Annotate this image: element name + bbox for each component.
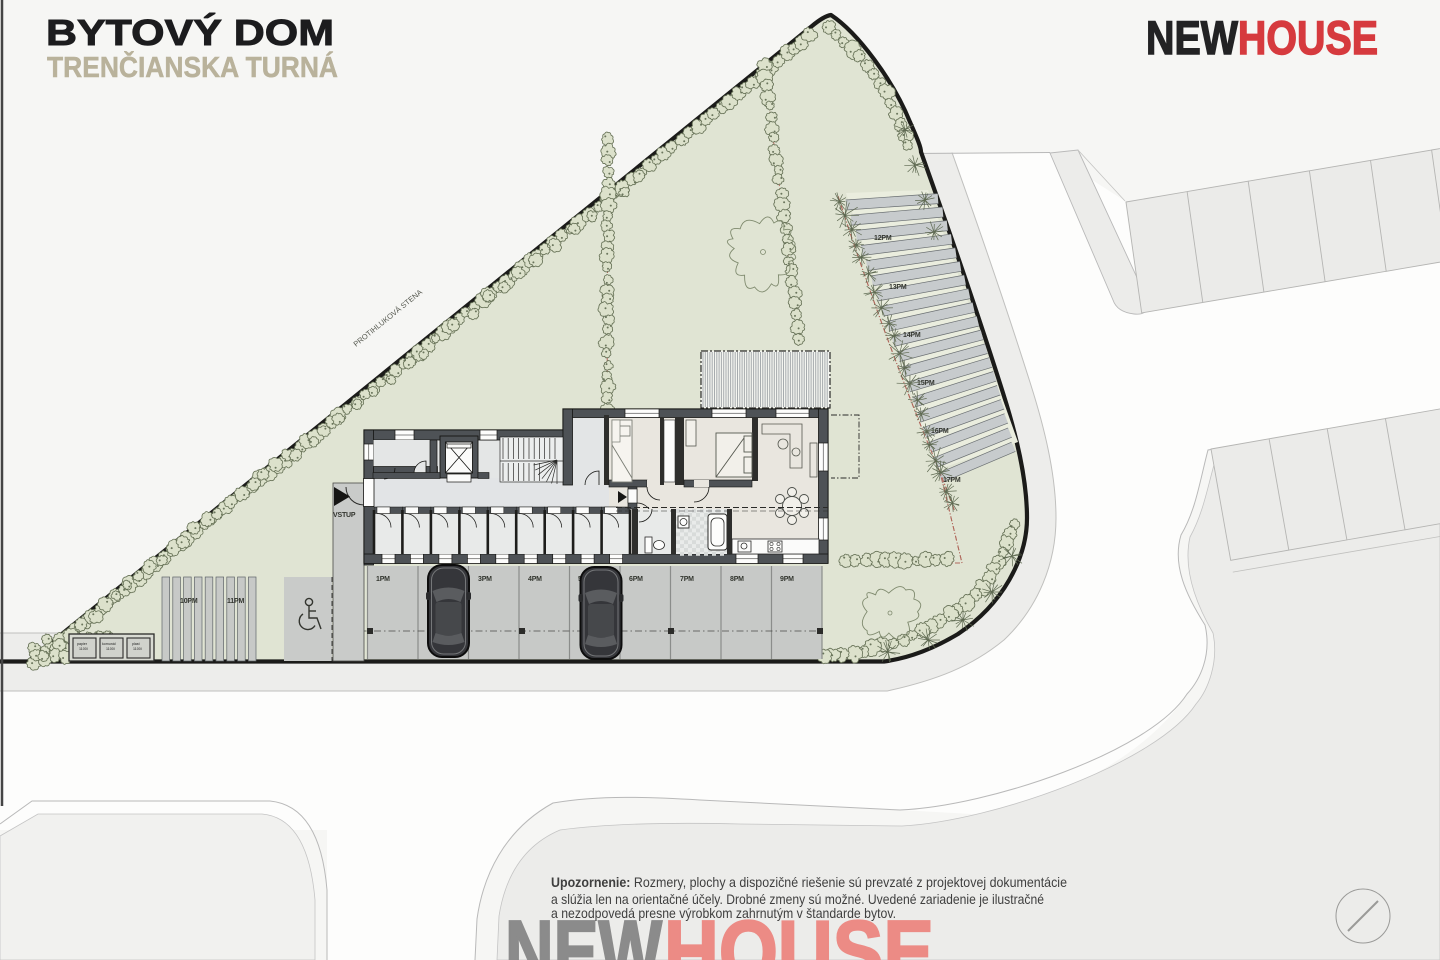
svg-text:NEWHOUSE: NEWHOUSE: [1146, 11, 1378, 64]
svg-text:1PM: 1PM: [376, 576, 390, 583]
svg-text:plast: plast: [132, 642, 140, 646]
svg-text:13PM: 13PM: [889, 284, 907, 291]
svg-text:11PM: 11PM: [227, 598, 244, 605]
svg-text:papier: papier: [77, 642, 88, 646]
svg-text:15PM: 15PM: [917, 380, 935, 387]
svg-text:1100l: 1100l: [106, 647, 115, 651]
svg-text:10PM: 10PM: [180, 598, 198, 605]
svg-text:NEW: NEW: [505, 902, 662, 960]
svg-text:8PM: 8PM: [730, 576, 744, 583]
svg-text:12PM: 12PM: [874, 235, 892, 242]
svg-text:TRENČIANSKA TURNÁ: TRENČIANSKA TURNÁ: [47, 50, 338, 84]
svg-text:1100l: 1100l: [79, 647, 88, 651]
svg-text:HOUSE: HOUSE: [664, 902, 934, 960]
svg-text:VSTUP: VSTUP: [333, 512, 356, 519]
svg-text:BYTOVÝ DOM: BYTOVÝ DOM: [46, 12, 334, 53]
svg-text:7PM: 7PM: [680, 576, 694, 583]
svg-text:9PM: 9PM: [780, 576, 794, 583]
svg-text:16PM: 16PM: [931, 428, 949, 435]
svg-text:1100l: 1100l: [133, 647, 142, 651]
svg-text:Upozornenie: Rozmery, plochy a: Upozornenie: Rozmery, plochy a dispozičn…: [551, 874, 1067, 890]
svg-text:4PM: 4PM: [528, 576, 542, 583]
svg-text:6PM: 6PM: [629, 576, 643, 583]
svg-text:komunál: komunál: [102, 642, 116, 646]
svg-text:3PM: 3PM: [478, 576, 492, 583]
svg-text:14PM: 14PM: [903, 332, 921, 339]
